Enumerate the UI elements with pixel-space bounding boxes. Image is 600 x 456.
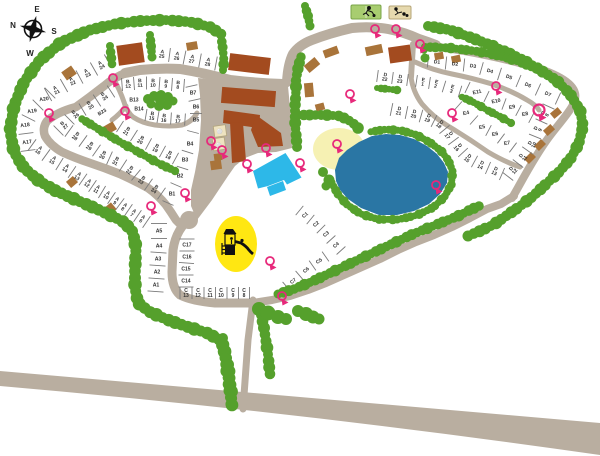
svg-text:B1: B1	[169, 192, 176, 198]
svg-text:B7: B7	[190, 91, 197, 97]
svg-text:B13: B13	[129, 98, 138, 104]
svg-text:A2: A2	[154, 270, 161, 276]
svg-text:A1: A1	[153, 283, 160, 289]
svg-text:B4: B4	[187, 142, 194, 148]
svg-text:B14: B14	[134, 107, 143, 113]
svg-text:N: N	[10, 21, 16, 30]
svg-text:A3: A3	[155, 257, 162, 263]
svg-text:W: W	[26, 49, 34, 58]
svg-text:⚪: ⚪	[217, 128, 223, 135]
svg-text:C15: C15	[181, 267, 190, 273]
svg-text:D2: D2	[451, 61, 458, 68]
svg-text:C17: C17	[182, 243, 191, 249]
svg-text:A5: A5	[156, 229, 163, 235]
svg-text:B6: B6	[193, 105, 200, 111]
svg-text:B3: B3	[182, 158, 189, 164]
svg-text:E: E	[34, 5, 40, 14]
svg-text:B5: B5	[193, 118, 200, 124]
svg-text:D1: D1	[433, 59, 440, 66]
svg-text:A4: A4	[156, 244, 163, 250]
svg-text:B2: B2	[177, 174, 184, 180]
svg-text:D3: D3	[469, 63, 477, 70]
svg-text:C14: C14	[181, 279, 190, 285]
svg-text:S: S	[51, 27, 57, 36]
svg-text:C16: C16	[182, 255, 191, 261]
